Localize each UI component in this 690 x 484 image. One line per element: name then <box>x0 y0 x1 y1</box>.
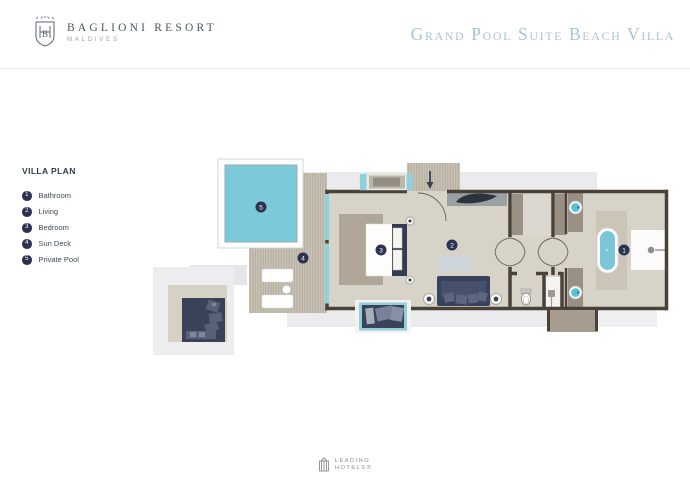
plan-marker-number: 4 <box>301 255 305 262</box>
bathtub <box>597 228 618 273</box>
utility-room <box>546 277 561 309</box>
entry-walkway <box>407 163 460 191</box>
footer-line-2: HOTELS® <box>335 465 372 472</box>
deck-side-table <box>283 286 291 294</box>
rear-step <box>547 309 598 332</box>
sofa <box>437 276 490 306</box>
window-bench <box>360 174 413 190</box>
toilet-room <box>521 289 531 305</box>
outdoor-daybed <box>355 300 411 333</box>
plan-marker-number: 2 <box>450 242 454 249</box>
closet-floor <box>523 194 553 235</box>
plan-marker-number: 3 <box>379 247 383 254</box>
plan-marker-number: 1 <box>622 247 626 254</box>
leading-hotels-icon <box>318 457 330 472</box>
footer-logo: LEADING HOTELS® <box>0 457 690 472</box>
shower-area <box>631 230 665 270</box>
window-strips <box>325 194 329 304</box>
villa-plan-page: B BAGLIONI RESORT MALDIVES Grand Pool Su… <box>0 0 690 484</box>
outdoor-lounge-pavilion <box>168 285 227 342</box>
villa-floor-plan: 12345 <box>0 0 690 484</box>
shower-valve-icon <box>548 290 555 297</box>
wc-icon <box>522 293 531 305</box>
plan-marker-number: 5 <box>259 204 263 211</box>
footer-text: LEADING HOTELS® <box>335 458 372 471</box>
living-rug <box>438 256 471 271</box>
shower-head-icon <box>647 246 655 254</box>
